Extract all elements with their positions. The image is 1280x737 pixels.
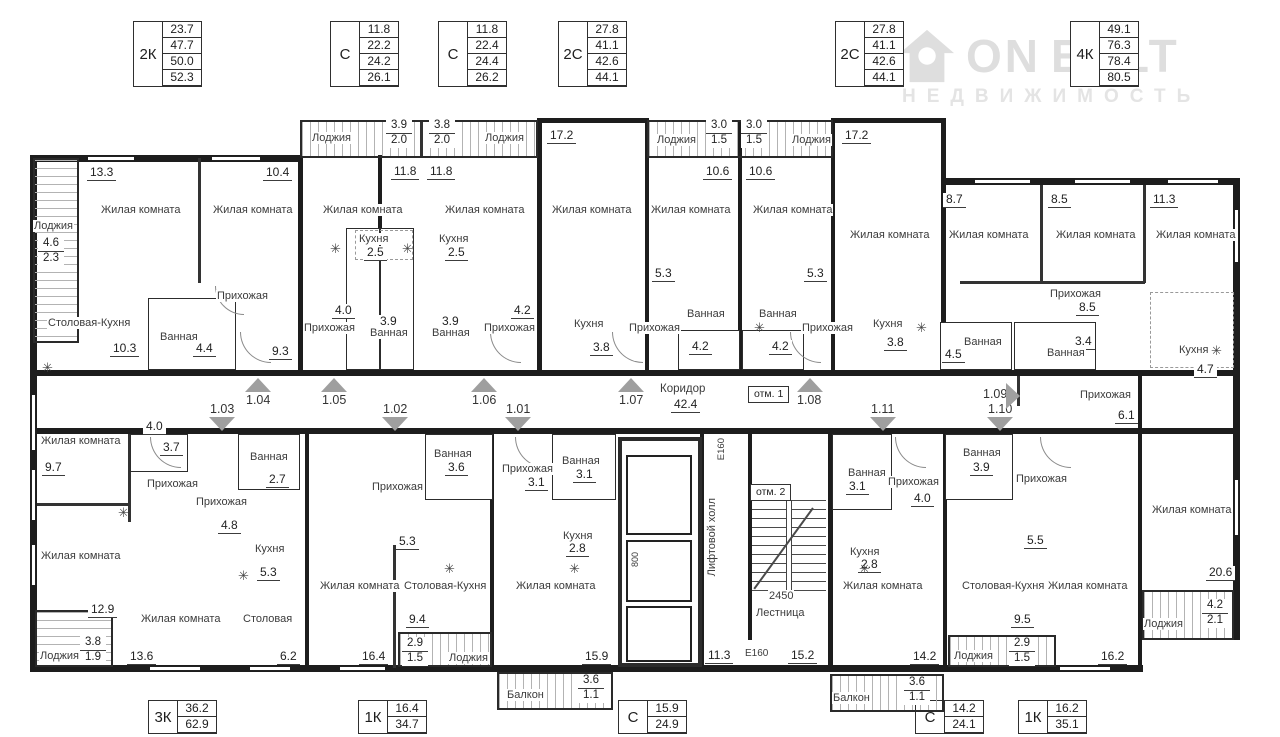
- room-name: Жилая комната: [40, 435, 121, 447]
- room-area: 3.1: [573, 468, 596, 483]
- partition: [37, 503, 129, 506]
- room-name: Кухня: [254, 543, 285, 555]
- room-area: 16.4: [359, 650, 388, 665]
- room-name: Жилая комната: [948, 229, 1029, 241]
- area-top: 4.6: [38, 237, 64, 252]
- room-area: 5.3: [652, 267, 675, 282]
- elevator-shaft: [626, 606, 692, 662]
- corridor-label: Коридор: [659, 383, 706, 396]
- area-value: 44.1: [587, 69, 627, 86]
- room-name: Прихожая: [628, 322, 681, 334]
- sink-icon: ✳: [1211, 343, 1222, 359]
- area-values: 14.2 24.1: [944, 701, 983, 733]
- area-top: 3.6: [904, 676, 930, 691]
- room-area: 4.0: [911, 492, 934, 507]
- window: [250, 666, 290, 671]
- legend-table-s1: С 11.8 22.2 24.2 26.1: [330, 21, 399, 87]
- room-name: Жилая комната: [849, 229, 930, 241]
- wall: [833, 118, 945, 123]
- room-area: 3.7: [160, 441, 183, 456]
- area-value: 78.4: [1099, 53, 1139, 70]
- area-value: 36.2: [177, 700, 217, 717]
- apartment-type: С: [439, 22, 467, 86]
- unit-number: 1.01: [504, 402, 532, 416]
- sink-icon: ✳: [444, 561, 455, 577]
- room-name: Лоджия: [39, 650, 80, 662]
- brand-subtitle: НЕДВИЖИМОСТЬ: [902, 86, 1201, 108]
- area-bottom: 2.0: [429, 134, 455, 148]
- legend-table-s2: С 11.8 22.4 24.4 26.2: [438, 21, 507, 87]
- room-area: 11.3: [1150, 193, 1178, 208]
- room-name: Прихожая: [1049, 288, 1102, 300]
- apartment-type: 1К: [359, 701, 387, 733]
- room-name: Ванная: [1046, 347, 1086, 359]
- wall-corridor-bottom: [37, 428, 1233, 434]
- lift-hall-area: 11.3: [705, 649, 733, 664]
- window: [1075, 179, 1130, 184]
- legend-table-2k: 2К 23.7 47.7 50.0 52.3: [133, 21, 202, 87]
- room-name: Лоджия: [953, 650, 994, 662]
- room-name: Прихожая: [801, 322, 854, 334]
- room-name: Кухня: [573, 318, 604, 330]
- lift-hall-label: Лифтовой холл: [706, 498, 718, 576]
- room-name: Прихожая: [371, 481, 424, 493]
- sink-icon: ✳: [754, 320, 765, 336]
- area-value: 80.5: [1099, 69, 1139, 86]
- partition: [198, 158, 201, 283]
- partition: [1040, 185, 1043, 283]
- partition: [960, 281, 1145, 284]
- area-values: 27.8 41.1 42.6 44.1: [587, 22, 626, 86]
- apartment-type: С: [331, 22, 359, 86]
- room-area: 13.3: [87, 166, 116, 181]
- area-value: 23.7: [162, 21, 202, 38]
- level-mark-1: отм. 1: [748, 386, 789, 403]
- area-values: 36.2 62.9: [177, 701, 216, 733]
- room-area: 4.2: [511, 304, 534, 319]
- apartment-type: 3К: [149, 701, 177, 733]
- room-name: Столовая-Кухня: [961, 580, 1045, 592]
- unit-number: 1.08: [795, 393, 823, 407]
- apartment-type: С: [619, 701, 647, 733]
- room-area: 3.1: [846, 480, 869, 495]
- room-area: 15.9: [582, 650, 611, 665]
- room-area: 14.2: [910, 650, 939, 665]
- room-name: Лоджия: [33, 220, 74, 232]
- room-area: 3.8: [590, 341, 613, 356]
- apartment-type: 1К: [1019, 701, 1047, 733]
- area-top: 3.6: [578, 674, 604, 689]
- room-area: 8.7: [943, 193, 966, 208]
- unit-arrow: [321, 378, 347, 392]
- balcony-area-pair: 3.61.1: [578, 674, 604, 703]
- area-value: 42.6: [864, 53, 904, 70]
- sink-icon: ✳: [916, 320, 927, 336]
- room-area: 4.0: [143, 420, 166, 435]
- room-name: Прихожая: [195, 496, 248, 508]
- wall: [298, 155, 303, 375]
- unit-arrow: [618, 378, 644, 392]
- wall-corridor-top: [37, 370, 1233, 376]
- loggia-area-pair: 3.81.9: [80, 636, 106, 665]
- area-value: 22.2: [359, 37, 399, 54]
- room-area: 9.7: [42, 461, 65, 476]
- area-value: 16.2: [1047, 700, 1087, 717]
- room-name: Жилая комната: [322, 204, 403, 216]
- elevator-shaft: [626, 540, 692, 602]
- room-area: 11.8: [391, 165, 419, 180]
- loggia-area-pair: 3.92.0: [386, 119, 412, 148]
- corridor-area: 42.4: [671, 398, 700, 413]
- door-arc: [490, 332, 521, 363]
- room-name: Прихожая: [1079, 389, 1132, 401]
- legend-table-s3: С 15.9 24.9: [618, 700, 687, 734]
- loggia-area-pair: 3.01.5: [741, 119, 767, 148]
- unit-number: 1.06: [470, 393, 498, 407]
- unit-number: 1.07: [617, 393, 645, 407]
- door-arc: [612, 332, 643, 363]
- room-name: Ванная: [433, 448, 473, 460]
- room-name: Кухня: [358, 233, 389, 245]
- unit-arrow: [245, 378, 271, 392]
- window: [1234, 480, 1239, 535]
- area-top: 3.8: [80, 636, 106, 651]
- area-top: 2.9: [402, 637, 428, 652]
- area-value: 47.7: [162, 37, 202, 54]
- room-name: Прихожая: [146, 478, 199, 490]
- apartment-type: 4К: [1071, 22, 1099, 86]
- room-area: 4.8: [218, 519, 241, 534]
- room-name: Жилая комната: [212, 204, 293, 216]
- room-area: 16.2: [1098, 650, 1127, 665]
- window: [340, 666, 385, 671]
- loggia-area-pair: 4.22.1: [1202, 599, 1228, 628]
- loggia-area-pair: 4.62.3: [38, 237, 64, 266]
- room-area: 3.9: [970, 461, 993, 476]
- door-label-hall: E160: [716, 438, 727, 460]
- room-name: Жилая комната: [842, 580, 923, 592]
- area-top: 3.9: [386, 119, 412, 134]
- area-value: 26.2: [467, 69, 507, 86]
- sink-icon: ✳: [330, 241, 341, 257]
- area-values: 11.8 22.4 24.4 26.2: [467, 22, 506, 86]
- legend-table-2s1: 2С 27.8 41.1 42.6 44.1: [558, 21, 627, 87]
- sink-icon: ✳: [859, 561, 870, 577]
- area-bottom: 1.5: [402, 652, 428, 666]
- stairs-label: Лестница: [755, 607, 806, 619]
- room-area: 9.5: [1011, 613, 1034, 628]
- door-label-stair: E160: [744, 648, 769, 659]
- door-arc: [895, 437, 926, 468]
- window: [975, 179, 1030, 184]
- sink-icon: ✳: [402, 241, 413, 257]
- room-area: 13.6: [127, 650, 156, 665]
- room-name: Лоджия: [656, 134, 697, 146]
- room-name: Жилая комната: [444, 204, 525, 216]
- sink-icon: ✳: [569, 561, 580, 577]
- area-bottom: 2.1: [1202, 614, 1228, 628]
- unit-arrow: [471, 378, 497, 392]
- area-value: 34.7: [387, 716, 427, 733]
- room-name: Ванная: [847, 467, 887, 479]
- room-name: Жилая комната: [650, 204, 731, 216]
- sink-icon: ✳: [118, 505, 129, 521]
- wall: [305, 434, 309, 668]
- unit-arrow: [797, 378, 823, 392]
- elevator-dim-label: 800: [630, 552, 640, 567]
- loggia-area-pair: 3.01.5: [706, 119, 732, 148]
- room-area: 5.5: [1024, 534, 1047, 549]
- window: [88, 156, 134, 161]
- room-area: 17.2: [842, 129, 871, 144]
- wall: [537, 118, 649, 123]
- room-name: Ванная: [431, 327, 471, 339]
- area-value: 24.2: [359, 53, 399, 70]
- room-name: Ванная: [963, 336, 1003, 348]
- sink-icon: ✳: [238, 568, 249, 584]
- area-top: 4.2: [1202, 599, 1228, 614]
- room-name: Ванная: [369, 327, 409, 339]
- area-values: 15.9 24.9: [647, 701, 686, 733]
- area-value: 11.8: [467, 21, 507, 38]
- area-top: 2.9: [1009, 637, 1035, 652]
- room-area: 4.2: [689, 340, 712, 355]
- legend-table-1k2: 1К 16.2 35.1: [1018, 700, 1087, 734]
- apartment-type: 2С: [836, 22, 864, 86]
- room-name: Лоджия: [448, 652, 489, 664]
- room-area: 4.0: [332, 304, 355, 319]
- room-name: Ванная: [561, 455, 601, 467]
- area-value: 50.0: [162, 53, 202, 70]
- room-area: 2.5: [445, 246, 468, 261]
- area-values: 23.7 47.7 50.0 52.3: [162, 22, 201, 86]
- balcony-area-pair: 3.61.1: [904, 676, 930, 705]
- room-name: Столовая-Кухня: [403, 580, 487, 592]
- window: [31, 395, 36, 450]
- room-area: 3.1: [525, 476, 548, 491]
- room-name: Прихожая: [501, 463, 554, 475]
- area-values: 49.1 76.3 78.4 80.5: [1099, 22, 1138, 86]
- partition: [1143, 185, 1146, 283]
- room-name: Прихожая: [887, 476, 940, 488]
- room-area: 5.3: [804, 267, 827, 282]
- house-icon: [898, 28, 956, 84]
- unit-number: 1.04: [244, 393, 272, 407]
- room-name: Прихожая: [216, 290, 269, 302]
- door-arc: [1040, 437, 1071, 468]
- room-area: 6.2: [277, 650, 300, 665]
- area-bottom: 1.1: [578, 689, 604, 703]
- loggia-area-pair: 3.82.0: [429, 119, 455, 148]
- legend-table-2s2: 2С 27.8 41.1 42.6 44.1: [835, 21, 904, 87]
- legend-table-4k: 4К 49.1 76.3 78.4 80.5: [1070, 21, 1139, 87]
- area-value: 76.3: [1099, 37, 1139, 54]
- unit-number: 1.09: [981, 387, 1009, 401]
- area-value: 42.6: [587, 53, 627, 70]
- room-area: 8.5: [1076, 301, 1099, 316]
- loggia-area-pair: 2.91.5: [1009, 637, 1035, 666]
- room-name: Ванная: [249, 451, 289, 463]
- room-area: 9.3: [269, 345, 292, 360]
- area-bottom: 2.3: [38, 252, 64, 266]
- room-name: Лоджия: [484, 132, 525, 144]
- door-arc: [240, 332, 271, 363]
- area-bottom: 1.5: [1009, 652, 1035, 666]
- window: [212, 156, 260, 161]
- area-value: 24.1: [944, 716, 984, 733]
- room-name: Лоджия: [311, 132, 352, 144]
- area-value: 27.8: [587, 21, 627, 38]
- floor-plan: ON EALT НЕДВИЖИМОСТЬ 2К 23.7 47.7 50.0 5…: [0, 0, 1280, 737]
- room-name: Лоджия: [791, 134, 832, 146]
- room-name: Жилая комната: [551, 204, 632, 216]
- level-mark-2: отм. 2: [750, 484, 791, 501]
- room-name: Прихожая: [1015, 473, 1068, 485]
- room-area: 8.5: [1048, 193, 1071, 208]
- stairs-area: 15.2: [788, 649, 817, 664]
- room-name: Жилая комната: [100, 204, 181, 216]
- sink-icon: ✳: [42, 360, 53, 376]
- room-area: 4.2: [769, 340, 792, 355]
- area-value: 24.9: [647, 716, 687, 733]
- elevator-shaft: [626, 455, 692, 535]
- room-area: 9.4: [406, 613, 429, 628]
- stairs-dim: 2450: [768, 590, 794, 602]
- area-bottom: 1.1: [904, 691, 930, 705]
- room-name: Ванная: [962, 447, 1002, 459]
- partition: [420, 122, 423, 156]
- room-name: Балкон: [506, 689, 545, 701]
- area-value: 41.1: [587, 37, 627, 54]
- area-values: 16.2 35.1: [1047, 701, 1086, 733]
- area-value: 35.1: [1047, 716, 1087, 733]
- room-name: Столовая: [242, 613, 293, 625]
- unit-number: 1.03: [208, 402, 236, 416]
- room-name: Жилая комната: [1151, 504, 1232, 516]
- area-values: 27.8 41.1 42.6 44.1: [864, 22, 903, 86]
- room-area: 10.6: [703, 165, 732, 180]
- room-area: 10.4: [263, 166, 292, 181]
- room-name: Кухня: [438, 233, 469, 245]
- area-value: 52.3: [162, 69, 202, 86]
- area-value: 62.9: [177, 716, 217, 733]
- room-area: 4.7: [1194, 363, 1217, 378]
- room-name: Ванная: [758, 308, 798, 320]
- area-value: 26.1: [359, 69, 399, 86]
- room-area: 17.2: [547, 129, 576, 144]
- room-name: Жилая комната: [1155, 229, 1236, 241]
- room-name: Жилая комната: [319, 580, 400, 592]
- area-bottom: 1.9: [80, 651, 106, 665]
- room-area: 5.3: [257, 566, 280, 581]
- room-area: 5.3: [396, 535, 419, 550]
- apartment-type: 2К: [134, 22, 162, 86]
- legend-table-1k1: 1К 16.4 34.7: [358, 700, 427, 734]
- room-area: 4.4: [193, 342, 216, 357]
- room-area: 2.8: [566, 542, 589, 557]
- area-value: 14.2: [944, 700, 984, 717]
- area-values: 16.4 34.7: [387, 701, 426, 733]
- loggia-area-pair: 2.91.5: [402, 637, 428, 666]
- area-value: 44.1: [864, 69, 904, 86]
- room-name: Ванная: [686, 308, 726, 320]
- area-bottom: 1.5: [706, 134, 732, 148]
- room-name: Жилая комната: [140, 613, 221, 625]
- area-top: 3.0: [706, 119, 732, 134]
- partition: [1017, 376, 1020, 406]
- area-value: 27.8: [864, 21, 904, 38]
- brand-left: ON: [966, 29, 1041, 83]
- unit-number: 1.02: [381, 402, 409, 416]
- area-values: 11.8 22.2 24.2 26.1: [359, 22, 398, 86]
- partition: [393, 545, 396, 668]
- room-area: 20.6: [1206, 566, 1235, 581]
- area-value: 11.8: [359, 21, 399, 38]
- unit-number: 1.05: [320, 393, 348, 407]
- room-name: Прихожая: [303, 322, 356, 334]
- room-area: 4.5: [942, 348, 965, 363]
- window: [1168, 179, 1218, 184]
- room-name: Жилая комната: [1047, 580, 1128, 592]
- window: [150, 666, 200, 671]
- room-area: 12.9: [88, 603, 117, 618]
- apartment-type: 2С: [559, 22, 587, 86]
- area-value: 49.1: [1099, 21, 1139, 38]
- room-name: Жилая комната: [515, 580, 596, 592]
- room-area: 10.3: [110, 342, 139, 357]
- room-area: 10.6: [746, 165, 775, 180]
- unit-number: 1.11: [869, 402, 896, 416]
- stairs-stringer: [786, 500, 792, 594]
- room-name: Кухня: [872, 318, 903, 330]
- room-name: Лоджия: [1143, 618, 1184, 630]
- room-name: Жилая комната: [1055, 229, 1136, 241]
- room-area: 3.8: [884, 336, 907, 351]
- window: [1060, 666, 1110, 671]
- window: [31, 545, 36, 585]
- area-value: 41.1: [864, 37, 904, 54]
- area-value: 15.9: [647, 700, 687, 717]
- room-area: 3.6: [445, 461, 468, 476]
- room-area: 2.7: [266, 473, 289, 488]
- room-name: Столовая-Кухня: [47, 317, 131, 329]
- room-name: Жилая комната: [752, 204, 833, 216]
- area-value: 22.4: [467, 37, 507, 54]
- area-value: 24.4: [467, 53, 507, 70]
- room-name: Прихожая: [483, 322, 536, 334]
- room-name: Жилая комната: [40, 550, 121, 562]
- window: [31, 470, 36, 520]
- room-area: 2.5: [364, 246, 387, 261]
- area-value: 16.4: [387, 700, 427, 717]
- room-area: 6.1: [1115, 409, 1138, 424]
- legend-table-3k: 3К 36.2 62.9: [148, 700, 217, 734]
- area-bottom: 1.5: [741, 134, 767, 148]
- area-top: 3.8: [429, 119, 455, 134]
- room-name: Балкон: [832, 692, 871, 704]
- room-area: 11.8: [427, 165, 455, 180]
- room-name: Кухня: [1178, 344, 1209, 356]
- area-bottom: 2.0: [386, 134, 412, 148]
- area-top: 3.0: [741, 119, 767, 134]
